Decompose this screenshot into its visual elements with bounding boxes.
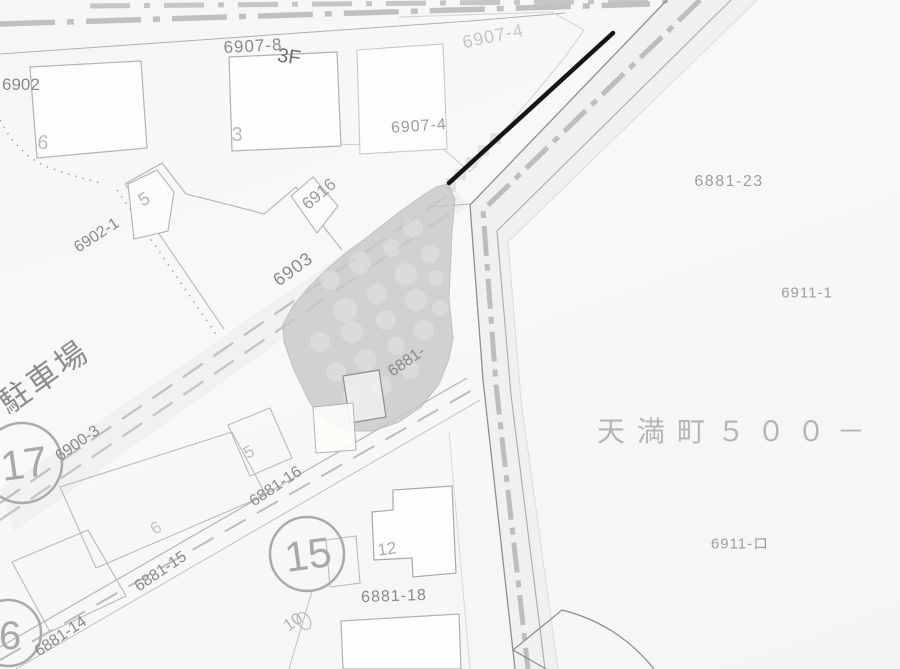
parcel-label-690x-clipped: 6902 bbox=[2, 76, 42, 100]
building-outline-bottom bbox=[341, 614, 461, 669]
floor-label-3f: 3F bbox=[276, 45, 302, 68]
building-outline-12 bbox=[372, 486, 456, 577]
circled-number-15: 15 bbox=[282, 531, 334, 579]
circled-number-17: 17 bbox=[0, 440, 50, 488]
lot-number-12: 12 bbox=[376, 539, 397, 558]
circled-number-6: 6 bbox=[0, 616, 21, 656]
road-band-east bbox=[470, 0, 757, 669]
parcel-label-6881-23: 6881-23 bbox=[694, 174, 763, 190]
parcel-label-6907-8: 6907-8 bbox=[223, 36, 283, 56]
parcel-label-6881-18: 6881-18 bbox=[361, 588, 427, 606]
parcel-label-690x-text: 6902 bbox=[2, 76, 40, 94]
cadastral-map: 6907-8 3F 6907-4 6907-4 6902 6902-1 6903… bbox=[0, 0, 900, 669]
address-label-tenmacho: 天満町５００－ bbox=[597, 418, 877, 446]
parcel-label-6911-ro: 6911-ロ bbox=[711, 537, 769, 552]
parcel-outline-6881-14 bbox=[12, 530, 126, 632]
parcel-label-6911-1: 6911-1 bbox=[781, 286, 833, 301]
building-outline-6907-4 bbox=[357, 44, 447, 154]
parcel-white-quad bbox=[313, 403, 356, 453]
lot-number-6-top: 6 bbox=[37, 133, 50, 154]
map-linework bbox=[0, 0, 900, 669]
lot-number-3: 3 bbox=[231, 125, 242, 145]
